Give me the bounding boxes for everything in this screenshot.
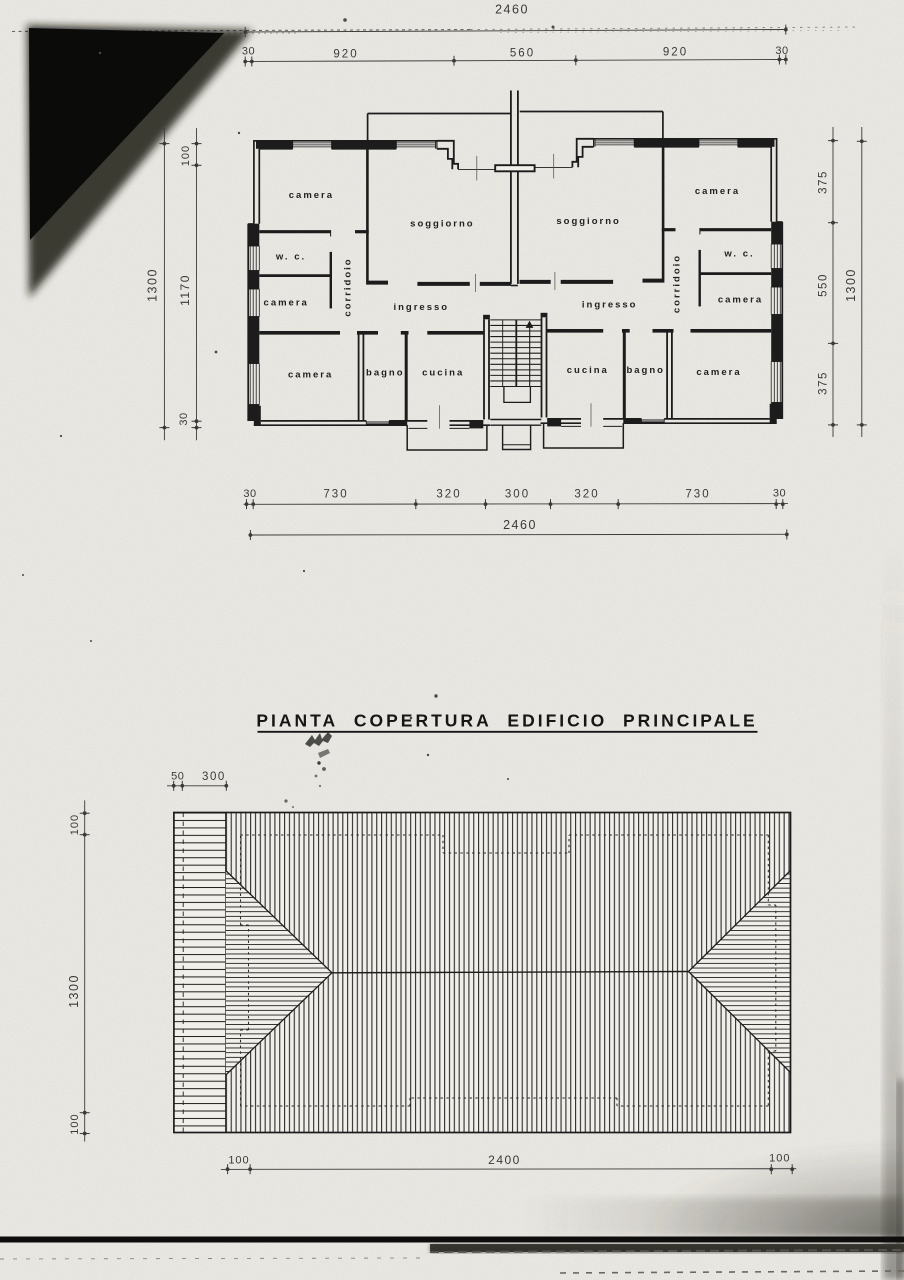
svg-text:camera: camera — [696, 367, 741, 378]
svg-text:920: 920 — [663, 47, 688, 59]
svg-text:w. c.: w. c. — [275, 252, 306, 263]
svg-text:1300: 1300 — [67, 974, 81, 1008]
svg-text:corridoio: corridoio — [672, 254, 683, 313]
svg-text:bagno: bagno — [626, 365, 665, 376]
svg-text:camera: camera — [264, 298, 309, 309]
svg-text:cucina: cucina — [422, 368, 464, 379]
svg-text:100: 100 — [228, 1155, 249, 1167]
svg-text:ingresso: ingresso — [393, 302, 449, 313]
svg-text:30: 30 — [773, 488, 786, 500]
svg-text:100: 100 — [69, 814, 81, 835]
svg-text:w. c.: w. c. — [723, 249, 754, 260]
svg-text:375: 375 — [818, 170, 830, 194]
svg-text:2400: 2400 — [488, 1153, 521, 1167]
svg-text:corridoio: corridoio — [342, 257, 353, 316]
svg-text:camera: camera — [718, 295, 763, 306]
svg-text:100: 100 — [180, 145, 192, 166]
svg-text:camera: camera — [288, 370, 333, 381]
svg-text:cucina: cucina — [567, 365, 609, 376]
svg-text:soggiorno: soggiorno — [556, 216, 620, 227]
svg-text:300: 300 — [505, 489, 530, 501]
svg-text:375: 375 — [818, 371, 830, 395]
svg-text:PIANTA COPERTURA EDIFICIO P: PIANTA COPERTURA EDIFICIO PRINCIPALE — [256, 711, 757, 731]
svg-text:camera: camera — [695, 186, 740, 197]
svg-text:30: 30 — [178, 412, 190, 425]
svg-text:30: 30 — [243, 488, 256, 500]
svg-text:30: 30 — [242, 46, 255, 58]
svg-text:550: 550 — [818, 273, 830, 297]
svg-text:560: 560 — [510, 48, 535, 60]
svg-text:100: 100 — [69, 1113, 81, 1134]
svg-text:730: 730 — [685, 489, 710, 501]
svg-text:320: 320 — [436, 489, 461, 501]
svg-text:2460: 2460 — [495, 3, 529, 17]
svg-text:920: 920 — [333, 49, 358, 61]
svg-text:camera: camera — [289, 190, 334, 201]
svg-text:bagno: bagno — [366, 368, 405, 379]
svg-text:2460: 2460 — [503, 518, 537, 532]
svg-text:1170: 1170 — [178, 274, 192, 306]
svg-text:ingresso: ingresso — [582, 299, 638, 310]
svg-text:300: 300 — [202, 771, 226, 783]
svg-text:320: 320 — [574, 489, 599, 501]
svg-text:1300: 1300 — [146, 268, 160, 302]
svg-text:soggiorno: soggiorno — [410, 219, 474, 230]
svg-text:30: 30 — [775, 45, 788, 57]
svg-text:50: 50 — [171, 771, 184, 783]
svg-text:100: 100 — [769, 1153, 790, 1165]
svg-text:1300: 1300 — [844, 268, 858, 302]
svg-text:730: 730 — [323, 489, 348, 501]
